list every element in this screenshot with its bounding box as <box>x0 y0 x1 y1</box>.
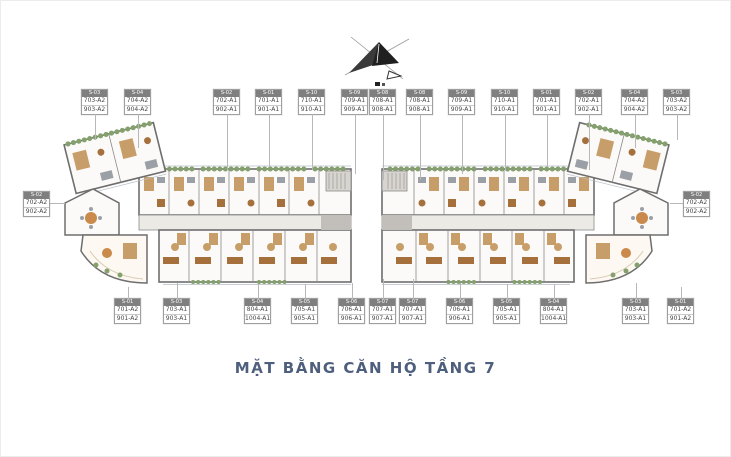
unit-number-floor7: 709-A1 <box>449 97 474 105</box>
leader-line <box>636 283 637 299</box>
leader-line <box>50 203 65 204</box>
unit-number-floor7: 706-A1 <box>447 306 472 314</box>
leader-line <box>420 114 421 180</box>
leader-line <box>547 114 548 167</box>
unit-number-floor7: 702-A2 <box>684 199 709 207</box>
unit-number-floor7: 701-A1 <box>534 97 559 105</box>
unit-label: S-03 703-A1 903-A1 <box>622 298 649 324</box>
unit-label: S-10 710-A1 910-A1 <box>491 89 518 115</box>
unit-number-floor9: 902-A2 <box>24 207 49 216</box>
left-side-unit-label-wrap: S-02 702-A2 902-A2 <box>23 191 50 217</box>
leader-line <box>505 114 506 170</box>
leader-line <box>677 114 678 140</box>
leader-line <box>227 114 228 170</box>
left-building-plan <box>63 119 353 294</box>
top-right-unit-labels: S-08 708-A1 908-A1 S-09 709-A1 909-A1 S-… <box>1 89 730 114</box>
unit-label: S-02 702-A1 902-A1 <box>575 89 602 115</box>
leader-line <box>269 114 270 167</box>
leader-line <box>635 114 636 148</box>
unit-number-floor7: 703-A2 <box>664 97 689 105</box>
unit-number-floor9: 906-A1 <box>447 314 472 323</box>
unit-label-header: S-01 <box>534 90 559 97</box>
leader-line <box>589 114 590 170</box>
unit-label: S-06 706-A1 906-A1 <box>446 298 473 324</box>
unit-number-floor9: 902-A2 <box>684 207 709 216</box>
floorplan-canvas: S-03 703-A2 903-A2 S-04 704-A2 904-A2 S-… <box>0 0 731 457</box>
unit-label-header: S-02 <box>576 90 601 97</box>
unit-number-floor9: 901-A2 <box>668 314 693 323</box>
unit-label: S-04 804-A1 1004-A1 <box>540 298 567 324</box>
leader-line <box>681 287 682 299</box>
unit-number-floor9: 907-A1 <box>400 314 425 323</box>
unit-label-header: S-10 <box>492 90 517 97</box>
unit-number-floor7: 710-A1 <box>492 97 517 105</box>
unit-number-floor7: 708-A1 <box>407 97 432 105</box>
unit-label-header: S-06 <box>447 299 472 306</box>
unit-label-header: S-04 <box>622 90 647 97</box>
leader-line <box>383 114 384 180</box>
unit-label-header: S-03 <box>623 299 648 306</box>
plan-title: MẶT BẰNG CĂN HỘ TẦNG 7 <box>1 359 730 377</box>
leader-line <box>138 114 139 148</box>
leader-line <box>352 283 353 299</box>
unit-label-header: S-04 <box>541 299 566 306</box>
unit-number-floor7: 702-A1 <box>576 97 601 105</box>
leader-line <box>670 203 683 204</box>
unit-label-header: S-02 <box>684 192 709 199</box>
leader-line <box>462 114 463 174</box>
unit-number-floor7: 701-A2 <box>668 306 693 314</box>
unit-number-floor9: 908-A1 <box>407 105 432 114</box>
unit-number-floor9: 910-A1 <box>492 105 517 114</box>
unit-label: S-02 702-A2 902-A2 <box>23 191 50 217</box>
unit-number-floor9: 904-A2 <box>622 105 647 114</box>
right-building-plan <box>380 119 670 294</box>
unit-number-floor7: 707-A1 <box>400 306 425 314</box>
unit-number-floor7: 705-A1 <box>494 306 519 314</box>
unit-number-floor7: 703-A1 <box>623 306 648 314</box>
unit-number-floor9: 909-A1 <box>449 105 474 114</box>
unit-label-header: S-08 <box>407 90 432 97</box>
leader-line <box>355 114 356 174</box>
leader-line <box>95 114 96 140</box>
unit-number-floor7: 702-A2 <box>24 199 49 207</box>
unit-number-floor7: 704-A2 <box>622 97 647 105</box>
unit-label-header: S-03 <box>664 90 689 97</box>
leader-line <box>383 279 384 299</box>
north-compass-icon <box>339 29 415 91</box>
unit-label-header: S-02 <box>24 192 49 199</box>
unit-label-header: S-05 <box>494 299 519 306</box>
leader-line <box>554 284 555 299</box>
unit-label: S-03 703-A2 903-A2 <box>663 89 690 115</box>
unit-label-header: S-09 <box>449 90 474 97</box>
unit-number-floor9: 901-A1 <box>534 105 559 114</box>
unit-number-floor9: 903-A2 <box>664 105 689 114</box>
unit-label: S-04 704-A2 904-A2 <box>621 89 648 115</box>
unit-number-floor9: 1004-A1 <box>541 314 566 323</box>
unit-number-floor9: 903-A1 <box>623 314 648 323</box>
leader-line <box>460 283 461 299</box>
leader-line <box>258 284 259 299</box>
leader-line <box>413 279 414 299</box>
unit-number-floor7: 804-A1 <box>541 306 566 314</box>
unit-label: S-05 705-A1 905-A1 <box>493 298 520 324</box>
unit-number-floor9: 902-A1 <box>576 105 601 114</box>
leader-line <box>312 114 313 170</box>
unit-label: S-07 707-A1 907-A1 <box>399 298 426 324</box>
unit-label: S-08 708-A1 908-A1 <box>406 89 433 115</box>
unit-label: S-01 701-A1 901-A1 <box>533 89 560 115</box>
unit-label: S-09 709-A1 909-A1 <box>448 89 475 115</box>
bottom-right-unit-labels: S-07 707-A1 907-A1 S-06 706-A1 906-A1 S-… <box>1 298 730 323</box>
unit-label-header: S-01 <box>668 299 693 306</box>
unit-label: S-02 702-A2 902-A2 <box>683 191 710 217</box>
unit-label: S-01 701-A2 901-A2 <box>667 298 694 324</box>
leader-line <box>305 284 306 299</box>
unit-number-floor9: 905-A1 <box>494 314 519 323</box>
right-side-unit-label-wrap: S-02 702-A2 902-A2 <box>683 191 710 217</box>
leader-line <box>507 284 508 299</box>
unit-label-header: S-07 <box>400 299 425 306</box>
leader-line <box>177 283 178 299</box>
